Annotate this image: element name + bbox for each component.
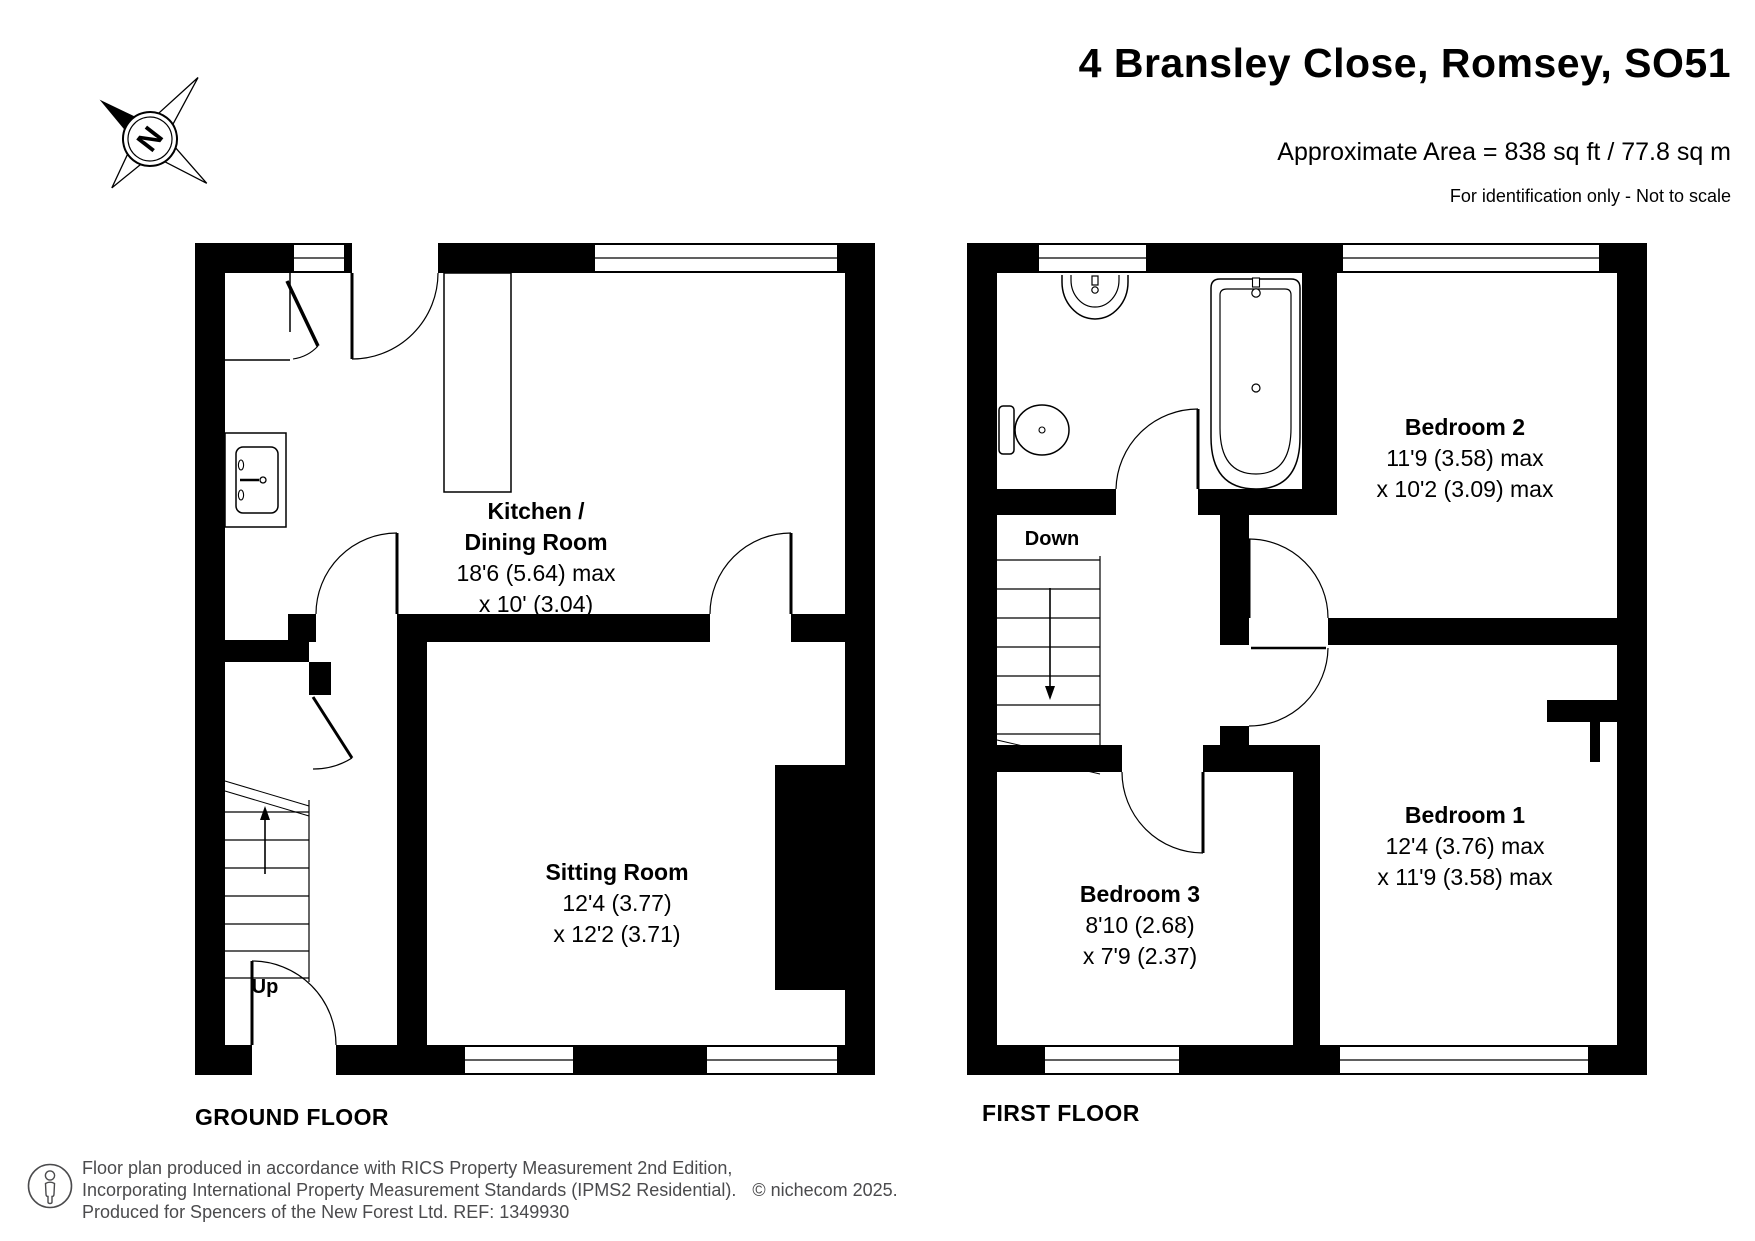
footer-disclaimer: Floor plan produced in accordance with R… bbox=[82, 1157, 898, 1223]
ground-floor-plan bbox=[195, 242, 875, 1076]
footer-line3: Produced for Spencers of the New Forest … bbox=[82, 1201, 898, 1223]
bedroom1-wall-recess bbox=[1547, 700, 1617, 722]
footer-line1: Floor plan produced in accordance with R… bbox=[82, 1157, 898, 1179]
ground-floor-label: GROUND FLOOR bbox=[195, 1104, 389, 1131]
person-scale-icon bbox=[26, 1162, 78, 1214]
room-label-sitting-room: Sitting Room 12'4 (3.77) x 12'2 (3.71) bbox=[545, 857, 688, 950]
kitchen-sink-icon bbox=[225, 433, 286, 527]
kitchen-counter bbox=[444, 273, 511, 492]
first-floor-plan bbox=[967, 243, 1647, 1075]
floorplan-drawing bbox=[0, 0, 1755, 1241]
toilet-icon bbox=[999, 405, 1069, 455]
room-label-bedroom3: Bedroom 3 8'10 (2.68) x 7'9 (2.37) bbox=[1080, 879, 1200, 972]
first-floor-label: FIRST FLOOR bbox=[982, 1100, 1140, 1127]
stairs-up-label: Up bbox=[252, 976, 279, 999]
bathtub-icon bbox=[1211, 278, 1300, 489]
stairs-down-label: Down bbox=[1025, 528, 1079, 551]
room-label-bedroom1: Bedroom 1 12'4 (3.76) max x 11'9 (3.58) … bbox=[1377, 800, 1552, 893]
footer-line2: Incorporating International Property Mea… bbox=[82, 1179, 898, 1201]
copyright-text: © nichecom 2025. bbox=[752, 1180, 897, 1200]
room-label-kitchen: Kitchen / Dining Room 18'6 (5.64) max x … bbox=[456, 496, 615, 620]
chimney-breast bbox=[775, 765, 845, 990]
front-door-opening bbox=[252, 1044, 336, 1076]
back-door-opening bbox=[352, 242, 438, 274]
room-label-bedroom2: Bedroom 2 11'9 (3.58) max x 10'2 (3.09) … bbox=[1377, 412, 1554, 505]
